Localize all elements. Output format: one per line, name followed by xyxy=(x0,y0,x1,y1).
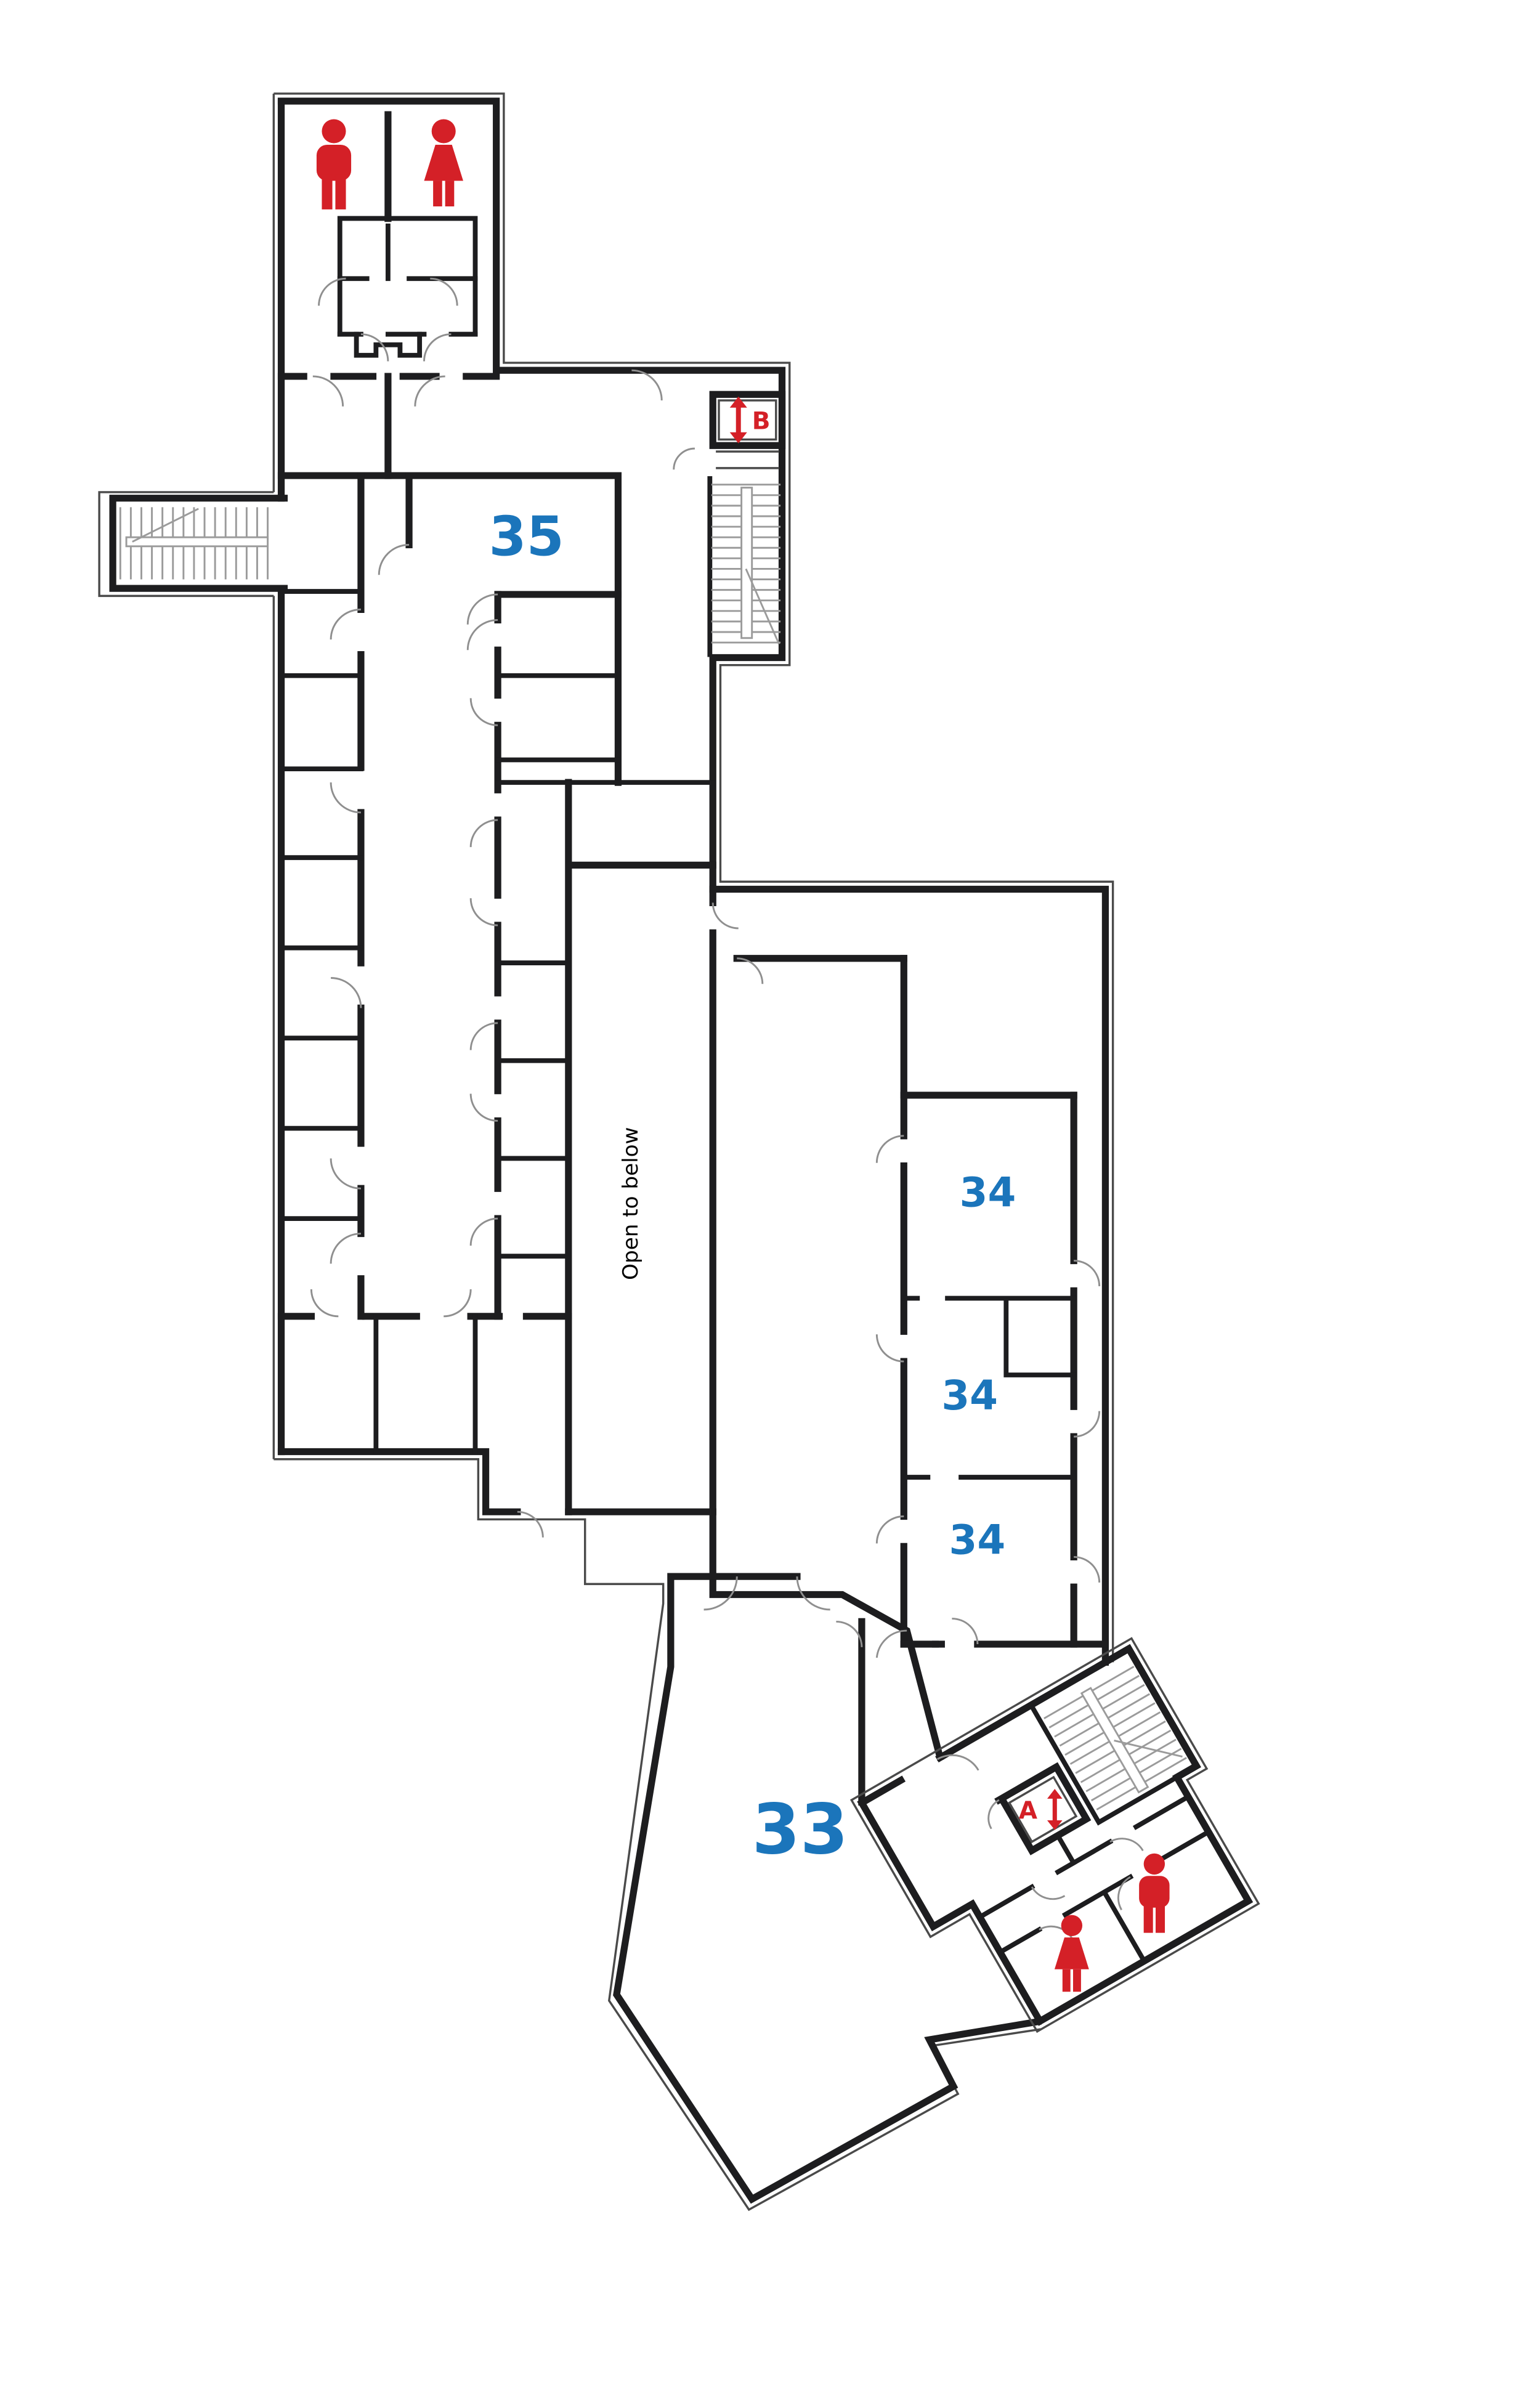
room-34-lower-label: 34 xyxy=(949,1517,1006,1564)
open-to-below-label: Open to below xyxy=(618,1127,643,1280)
floor-plan-page: B xyxy=(0,0,1540,2392)
womens-room-icon-south xyxy=(1055,1915,1089,1992)
elevator-b: B xyxy=(713,394,782,445)
stairs-west xyxy=(120,507,267,579)
mens-room-icon-south xyxy=(1139,1854,1169,1933)
elevator-b-letter: B xyxy=(752,407,771,435)
elevator-a-arrow-icon xyxy=(1047,1789,1063,1830)
room-34-upper-label: 34 xyxy=(960,1169,1016,1217)
building-outer-shell xyxy=(99,94,1113,2210)
elevator-b-arrow-icon xyxy=(730,397,747,444)
room-35-label: 35 xyxy=(488,505,564,568)
south-wing: A xyxy=(851,1639,1278,2054)
stairs-north xyxy=(710,452,780,655)
mens-room-icon xyxy=(317,119,351,209)
room-33-label: 33 xyxy=(752,1790,848,1870)
building-walls xyxy=(113,101,1105,2199)
floor-plan-svg: B xyxy=(0,0,1540,2392)
womens-room-icon xyxy=(424,119,463,206)
room-34-middle-label: 34 xyxy=(941,1372,998,1419)
elevator-a-letter: A xyxy=(1019,1797,1038,1825)
